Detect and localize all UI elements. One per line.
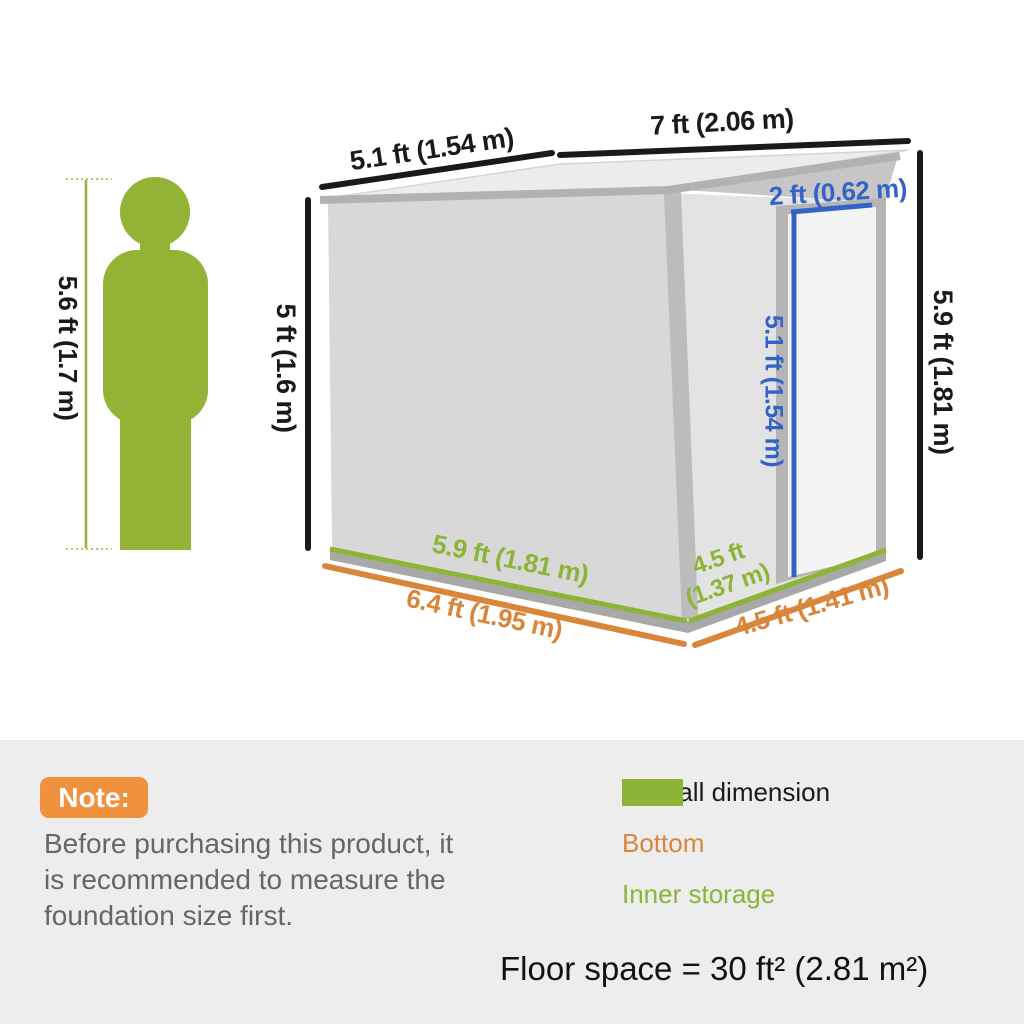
roof-right-width-label: 7 ft (2.06 m) [649,103,794,140]
person-icon [103,177,208,550]
right-wall-height-label: 5.9 ft (1.81 m) [928,289,958,454]
shed-dimension-diagram: 5.6 ft (1.7 m) [0,0,1024,740]
person-legs [120,408,191,550]
legend-label-inner-storage: Inner storage [622,879,775,910]
left-wall-height-label: 5 ft (1.6 m) [271,303,301,432]
legend-label-bottom: Bottom [622,828,704,859]
legend-row-inner-storage: Inner storage [622,881,830,908]
note-text: Before purchasing this product, it is re… [44,826,453,934]
note-text-line1: Before purchasing this product, it [44,826,453,862]
note-badge: Note: [40,777,148,818]
person-head [120,177,190,247]
shed-illustration [320,150,908,633]
footer-panel: Note: Before purchasing this product, it… [0,740,1024,1024]
door-height-label: 5.1 ft (1.54 m) [759,315,787,467]
note-text-line3: foundation size first. [44,898,453,934]
shed-door [788,207,876,577]
legend-row-bottom: Bottom [622,830,830,857]
shed-dimension-infographic: 5.6 ft (1.7 m) [0,0,1024,1024]
note-text-line2: is recommended to measure the [44,862,453,898]
person-torso [103,250,208,424]
floor-space-text: Floor space = 30 ft² (2.81 m²) [500,950,928,988]
legend-swatch-inner-storage [622,779,683,806]
person-height-label: 5.6 ft (1.7 m) [53,276,83,421]
legend: Overall dimension Bottom Inner storage [622,779,830,908]
